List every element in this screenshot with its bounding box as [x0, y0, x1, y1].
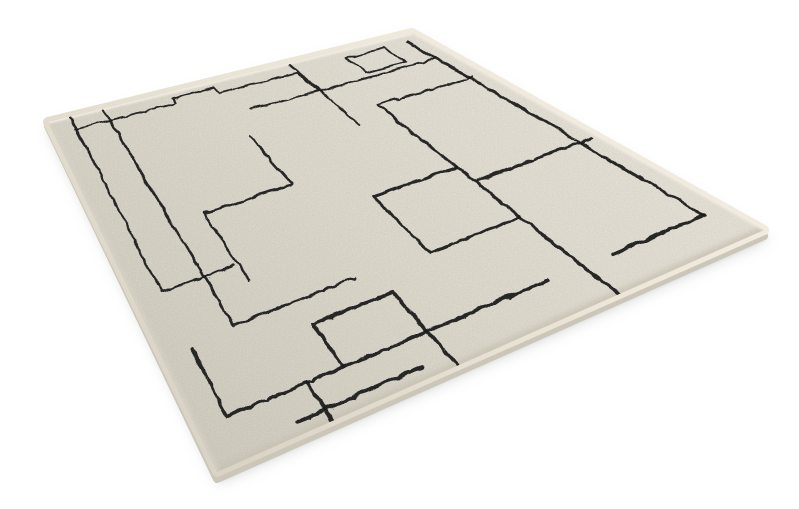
rug-product-image — [0, 0, 799, 509]
product-stage — [0, 0, 799, 509]
rug-canvas — [0, 0, 799, 509]
